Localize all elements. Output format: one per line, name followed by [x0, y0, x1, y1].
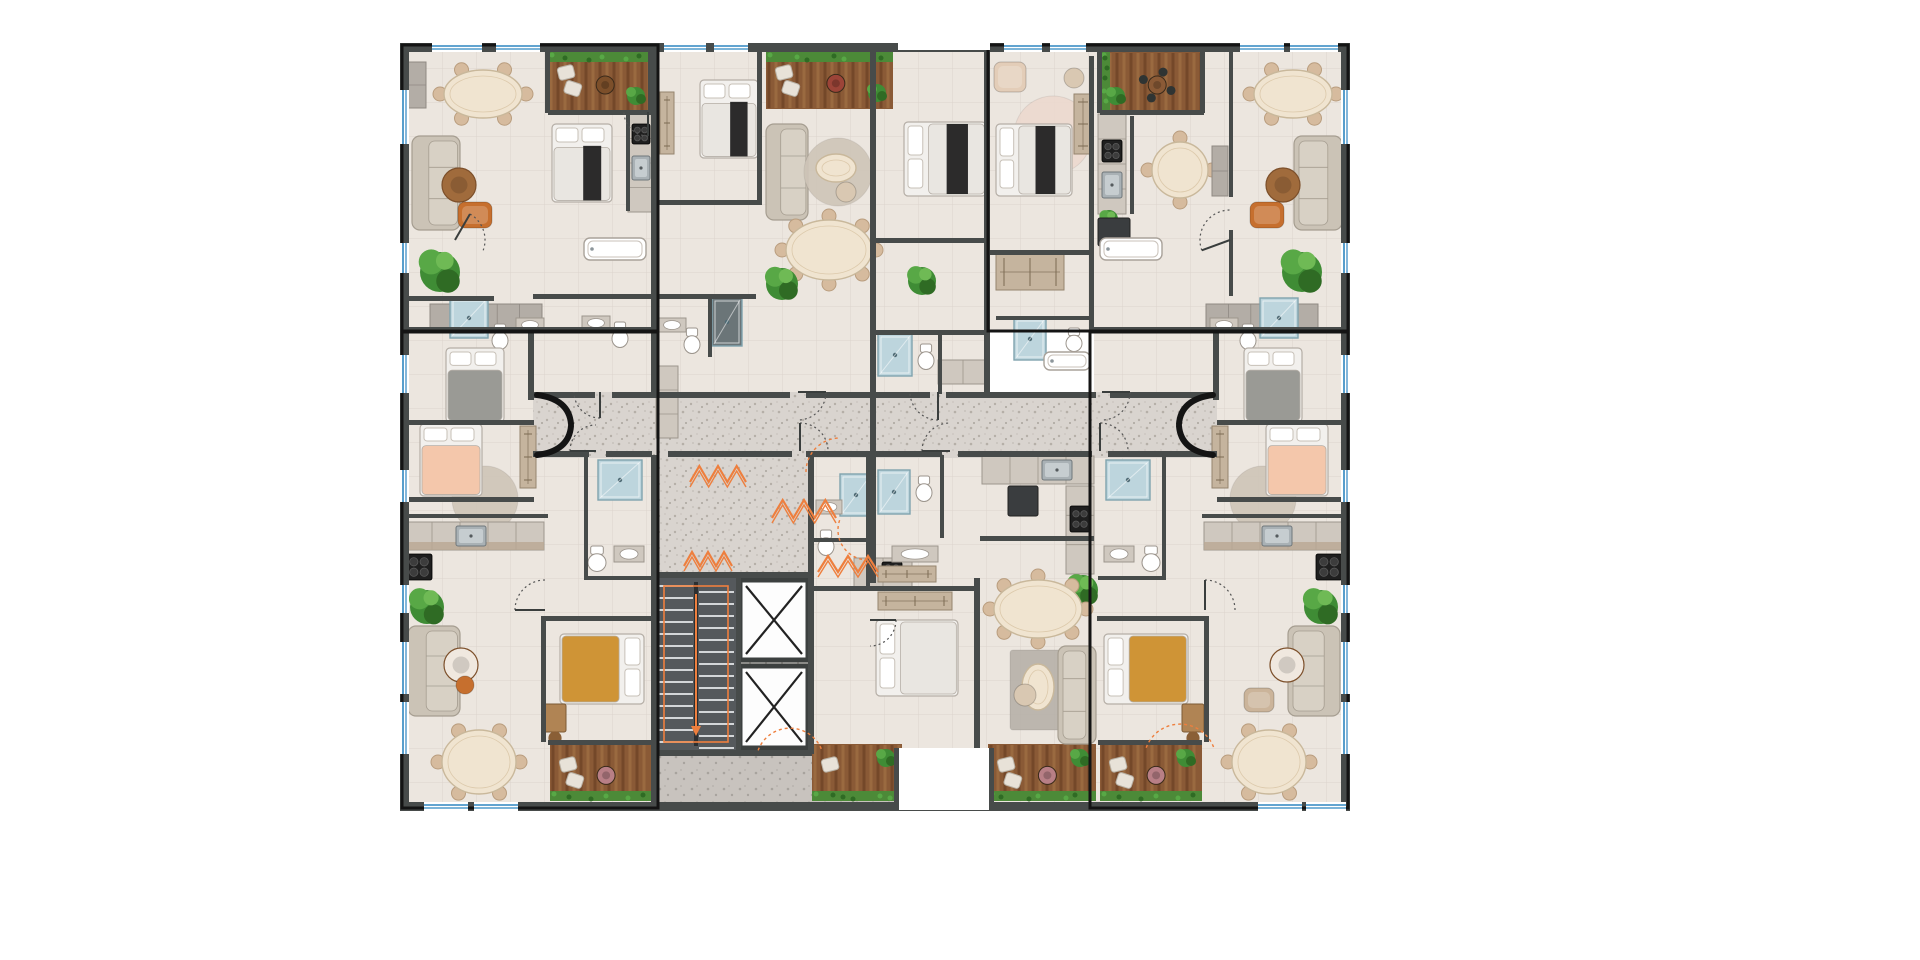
- duvet: [448, 370, 502, 420]
- wardrobe-icon: [660, 92, 674, 154]
- staircase-icon: [656, 578, 736, 750]
- armchair-icon: [1244, 688, 1274, 712]
- wall-segment: [938, 334, 942, 394]
- armchair-icon: [1250, 202, 1284, 228]
- cooktop-icon: [1316, 554, 1342, 580]
- toilet-bowl: [1240, 332, 1256, 350]
- grass-tuft: [832, 54, 837, 59]
- burner: [1320, 568, 1328, 576]
- wall-segment: [806, 451, 942, 457]
- cabinet-icon: [1212, 146, 1228, 196]
- burner: [642, 127, 648, 133]
- window-icon: [432, 43, 482, 52]
- sink-drain: [1110, 183, 1113, 186]
- sofa-icon: [766, 124, 808, 220]
- duvet: [1246, 370, 1300, 420]
- window-icon: [474, 802, 518, 811]
- window-icon: [1341, 642, 1350, 694]
- wall-segment: [1130, 116, 1134, 214]
- window-icon: [1306, 802, 1346, 811]
- wall-segment: [1213, 330, 1219, 400]
- shower-icon: [598, 460, 642, 500]
- window-icon: [400, 702, 409, 754]
- plant-leaf: [919, 278, 935, 294]
- wall-segment: [812, 586, 977, 591]
- pouf-icon: [456, 676, 474, 694]
- plant-leaf: [436, 269, 460, 293]
- outdoor-table-top: [1153, 81, 1161, 89]
- window-frame: [474, 802, 518, 811]
- wall-segment: [940, 455, 944, 538]
- pillow: [1297, 428, 1320, 441]
- wall-segment: [1162, 455, 1166, 579]
- grass-tuft: [1027, 797, 1032, 802]
- bed-icon: [1244, 348, 1302, 422]
- window-frame: [400, 702, 409, 754]
- floor-plan-page: [0, 0, 1920, 960]
- outdoor-chair-icon: [1159, 68, 1168, 77]
- grass-tuft: [999, 795, 1004, 800]
- grass-tuft: [888, 796, 893, 801]
- burner: [635, 127, 641, 133]
- bathtub-icon: [584, 238, 646, 260]
- fridge-icon: [1008, 486, 1038, 516]
- window-icon: [1341, 355, 1350, 393]
- cooktop-icon: [1070, 506, 1090, 532]
- toilet-tank: [1145, 546, 1158, 554]
- grass-tuft: [1102, 792, 1107, 797]
- table-top: [1152, 142, 1208, 198]
- armchair-icon: [994, 62, 1026, 92]
- grass-tuft: [1176, 796, 1181, 801]
- wall-segment: [584, 576, 652, 580]
- wall-segment: [648, 47, 653, 113]
- pillow: [704, 84, 725, 98]
- armchair-seat: [1254, 206, 1280, 224]
- wardrobe-icon: [878, 592, 952, 610]
- balcony-deck: [812, 744, 902, 802]
- outdoor-table-top: [1043, 771, 1051, 779]
- table-top: [1254, 70, 1332, 118]
- wall-segment: [548, 110, 652, 115]
- grass-tuft: [1073, 793, 1078, 798]
- bed-icon: [560, 634, 644, 704]
- wall-segment: [958, 451, 1092, 457]
- grass-tuft: [587, 58, 592, 63]
- bathroom-sink-icon: [658, 318, 686, 332]
- cooktop-icon: [1102, 140, 1122, 162]
- wall-segment: [651, 572, 812, 578]
- window-frame: [1004, 43, 1042, 52]
- sink-drain: [1275, 534, 1278, 537]
- plant-leaf: [1318, 590, 1333, 605]
- sink-drain: [1055, 468, 1058, 471]
- plant-leaf: [919, 268, 931, 280]
- window-frame: [1341, 243, 1350, 273]
- pillow: [1108, 638, 1123, 665]
- wall-segment: [946, 392, 1096, 398]
- pillow: [1248, 352, 1269, 365]
- table-top: [994, 580, 1082, 638]
- basin: [664, 321, 681, 330]
- toilet-bowl: [588, 554, 606, 572]
- sink-icon: [456, 526, 486, 546]
- sofa-seat: [1299, 141, 1328, 225]
- table-center: [1275, 177, 1292, 194]
- cooktop-icon: [406, 554, 432, 580]
- window-frame: [1258, 802, 1302, 811]
- window-icon: [424, 802, 468, 811]
- window-icon: [1341, 470, 1350, 502]
- window-icon: [714, 43, 748, 52]
- plant-leaf: [779, 269, 793, 283]
- grass-tuft: [1105, 66, 1110, 71]
- balcony-deck: [1100, 744, 1202, 802]
- burner: [1073, 511, 1079, 517]
- grass-tuft: [878, 794, 883, 799]
- window-frame: [1050, 43, 1086, 52]
- window-icon: [1050, 43, 1086, 52]
- table-center: [451, 177, 468, 194]
- burner: [420, 558, 428, 566]
- grass-tuft: [879, 56, 884, 61]
- sink-icon: [1102, 172, 1122, 198]
- plant-leaf: [636, 94, 646, 104]
- armchair-seat: [998, 66, 1022, 88]
- sofa-icon: [1294, 136, 1342, 230]
- window-frame: [714, 43, 748, 52]
- duvet: [1268, 446, 1326, 495]
- grass-tuft: [600, 55, 605, 60]
- window-frame: [1290, 43, 1338, 52]
- wall-segment: [894, 748, 899, 810]
- burner: [1073, 521, 1079, 527]
- grass-tuft: [1191, 793, 1196, 798]
- basin: [620, 549, 638, 559]
- wall-segment: [708, 299, 712, 357]
- pillow: [625, 669, 640, 696]
- pillow: [451, 428, 474, 441]
- burner: [1105, 143, 1111, 149]
- toilet-tank: [918, 476, 929, 484]
- wall-segment: [668, 451, 792, 457]
- wall-segment: [1202, 514, 1346, 518]
- window-frame: [1341, 90, 1350, 144]
- window-icon: [400, 585, 409, 613]
- table-top: [1232, 730, 1306, 794]
- toilet-bowl: [492, 332, 508, 350]
- sofa-seat: [781, 129, 806, 215]
- wall-segment: [757, 47, 762, 205]
- plant-leaf: [1116, 94, 1126, 104]
- wall-segment: [626, 115, 630, 211]
- burner: [410, 558, 418, 566]
- elevator-icon: [736, 580, 808, 660]
- duvet: [562, 636, 619, 702]
- window-frame: [664, 43, 706, 52]
- pillow: [1000, 128, 1014, 156]
- window-icon: [1258, 802, 1302, 811]
- plant-leaf: [424, 604, 444, 624]
- window-frame: [400, 243, 409, 273]
- wall-segment: [606, 451, 652, 457]
- wall-segment: [812, 538, 870, 542]
- toilet-icon: [1142, 546, 1160, 571]
- wardrobe-icon: [996, 254, 1064, 290]
- bed-throw: [947, 124, 968, 194]
- grass-tuft: [1139, 797, 1144, 802]
- window-frame: [400, 642, 409, 694]
- wall-segment: [1229, 47, 1233, 197]
- toilet-bowl: [1142, 554, 1160, 572]
- wall-segment: [1204, 621, 1209, 742]
- cooktop-body: [1070, 506, 1090, 532]
- shower-icon: [1106, 460, 1150, 500]
- wall-segment: [980, 536, 1094, 541]
- outdoor-chair-icon: [1147, 93, 1156, 102]
- bed-throw: [583, 146, 601, 201]
- pillow: [1000, 160, 1014, 188]
- grass-tuft: [1103, 56, 1108, 61]
- burner: [1113, 152, 1119, 158]
- window-icon: [1341, 90, 1350, 144]
- wall-segment: [651, 750, 812, 756]
- grass-tuft: [795, 55, 800, 60]
- sofa-seat: [1063, 651, 1086, 739]
- grass-strip: [1100, 791, 1202, 801]
- window-icon: [496, 43, 540, 52]
- burner: [1113, 143, 1119, 149]
- bed-icon: [996, 124, 1072, 196]
- facade-notch: [898, 748, 990, 810]
- wall-segment: [404, 420, 534, 425]
- toilet-icon: [612, 322, 628, 347]
- window-icon: [1341, 702, 1350, 754]
- kitchen-counter-icon: [982, 456, 1094, 484]
- grass-tuft: [1064, 796, 1069, 801]
- grass-tuft: [768, 53, 773, 58]
- window-icon: [1290, 43, 1338, 52]
- plant-leaf: [1186, 756, 1196, 766]
- burner: [1081, 511, 1087, 517]
- plant-leaf: [876, 749, 886, 759]
- kitchen-counter-icon: [938, 360, 988, 384]
- shower-icon: [712, 298, 742, 346]
- wall-segment: [736, 578, 741, 754]
- shower-icon: [878, 334, 912, 376]
- bed-icon: [1104, 634, 1188, 704]
- wardrobe-icon: [878, 566, 936, 582]
- grass-tuft: [1102, 89, 1107, 94]
- plant-leaf: [1298, 252, 1316, 270]
- wall-segment: [528, 330, 534, 400]
- wall-segment: [545, 47, 550, 113]
- grass-tuft: [1036, 794, 1041, 799]
- basin: [1110, 549, 1128, 559]
- pillow: [729, 84, 750, 98]
- window-icon: [1240, 43, 1284, 52]
- toilet-tank: [820, 530, 831, 538]
- wall-segment: [866, 455, 870, 586]
- bathroom-sink-icon: [892, 546, 938, 562]
- desk-top: [1182, 704, 1204, 732]
- burner: [420, 568, 428, 576]
- wall-segment: [1217, 497, 1346, 502]
- window-frame: [1341, 355, 1350, 393]
- duvet: [1129, 636, 1186, 702]
- wall-segment: [404, 296, 494, 301]
- wall-segment: [1100, 110, 1204, 115]
- pillow: [424, 428, 447, 441]
- wall-segment: [1098, 576, 1166, 580]
- cooktop-body: [406, 554, 432, 580]
- bathroom-sink-icon: [614, 546, 644, 562]
- apartment-floor: [533, 330, 656, 396]
- window-icon: [400, 243, 409, 273]
- window-frame: [1341, 642, 1350, 694]
- window-icon: [1004, 43, 1042, 52]
- basin: [901, 549, 929, 559]
- outdoor-table-top: [601, 81, 609, 89]
- bed-throw: [730, 102, 747, 157]
- pillow: [556, 128, 578, 142]
- duvet: [422, 446, 480, 495]
- coffee-table-icon: [1270, 648, 1304, 682]
- wall-segment: [1089, 56, 1094, 330]
- table-top: [786, 220, 872, 280]
- grass-tuft: [624, 57, 629, 62]
- wall-segment: [541, 616, 653, 621]
- toilet-bowl: [918, 352, 934, 370]
- pillow: [1273, 352, 1294, 365]
- toilet-tank: [686, 328, 697, 336]
- pouf-icon: [1014, 684, 1036, 706]
- pillow: [475, 352, 496, 365]
- toilet-bowl: [916, 484, 932, 502]
- apartment-floor: [1094, 330, 1217, 396]
- pillow: [880, 658, 895, 688]
- wall-segment: [656, 294, 756, 299]
- balcony-deck: [550, 744, 652, 802]
- desk-top: [544, 704, 566, 732]
- plant-leaf: [1298, 269, 1322, 293]
- pouf-icon: [836, 182, 856, 202]
- wall-segment: [548, 740, 652, 745]
- pillow: [1108, 669, 1123, 696]
- bed-icon: [700, 80, 758, 158]
- grass-tuft: [1117, 795, 1122, 800]
- bed-throw: [1036, 126, 1056, 194]
- wall-segment: [584, 455, 588, 579]
- wall-segment: [1217, 420, 1346, 425]
- cooktop-body: [1102, 140, 1122, 162]
- window-frame: [432, 43, 482, 52]
- plant-leaf: [436, 252, 454, 270]
- grass-tuft: [842, 57, 847, 62]
- bathtub-icon: [1100, 238, 1162, 260]
- burner: [1081, 521, 1087, 527]
- grass-strip: [988, 791, 1096, 801]
- duvet: [901, 622, 957, 694]
- duvet: [554, 147, 610, 200]
- pillow: [1270, 428, 1293, 441]
- balcony-deck: [548, 52, 652, 112]
- wall-segment: [808, 455, 814, 754]
- duvet: [702, 103, 756, 156]
- shower-icon: [1014, 318, 1046, 360]
- coffee-table-icon: [442, 168, 476, 202]
- window-frame: [400, 90, 409, 144]
- grass-tuft: [814, 792, 819, 797]
- table-top: [442, 730, 516, 794]
- plant-leaf: [1176, 749, 1186, 759]
- window-frame: [424, 802, 468, 811]
- sink-icon: [1262, 526, 1292, 546]
- burner: [1330, 568, 1338, 576]
- pillow: [908, 159, 923, 188]
- wall-segment: [656, 200, 760, 205]
- sink-drain: [639, 166, 642, 169]
- pillow: [908, 126, 923, 155]
- outdoor-table-top: [602, 771, 610, 779]
- basin: [588, 319, 605, 328]
- table-top: [444, 70, 522, 118]
- wall-segment: [404, 497, 534, 502]
- plant-leaf: [1106, 87, 1116, 97]
- grass-strip: [550, 791, 652, 801]
- wall-segment: [996, 316, 1090, 320]
- dining-table-icon: [983, 569, 1093, 649]
- plant-leaf: [1070, 749, 1080, 759]
- toilet-icon: [918, 344, 934, 369]
- bed-icon: [1266, 424, 1328, 496]
- wall-segment: [1097, 616, 1209, 621]
- grass-tuft: [604, 794, 609, 799]
- outdoor-chair-icon: [1139, 75, 1148, 84]
- pillow: [625, 638, 640, 665]
- window-icon: [400, 470, 409, 502]
- facade-notch: [898, 36, 990, 50]
- balcony-deck: [988, 744, 1096, 802]
- window-frame: [400, 355, 409, 393]
- window-icon: [1341, 585, 1350, 613]
- plant-leaf: [1318, 604, 1338, 624]
- wall-segment: [1200, 47, 1205, 113]
- burner: [1320, 558, 1328, 566]
- toilet-icon: [916, 476, 932, 501]
- bed-icon: [552, 124, 612, 202]
- window-icon: [400, 90, 409, 144]
- window-frame: [496, 43, 540, 52]
- window-frame: [1240, 43, 1284, 52]
- sink-icon: [1042, 460, 1072, 480]
- kitchen-counter-icon: [1098, 114, 1126, 214]
- tub-drain: [1050, 359, 1054, 363]
- grass-tuft: [567, 795, 572, 800]
- window-icon: [400, 642, 409, 694]
- elevator-icon: [736, 666, 808, 748]
- plant-leaf: [424, 590, 439, 605]
- grass-tuft: [550, 53, 555, 58]
- toilet-bowl: [1066, 335, 1082, 351]
- wall-segment: [989, 748, 994, 810]
- grass-tuft: [1154, 794, 1159, 799]
- burner: [635, 135, 641, 141]
- toilet-tank: [591, 546, 604, 554]
- armchair-seat: [1248, 692, 1270, 708]
- burner: [410, 568, 418, 576]
- plant-leaf: [877, 91, 887, 101]
